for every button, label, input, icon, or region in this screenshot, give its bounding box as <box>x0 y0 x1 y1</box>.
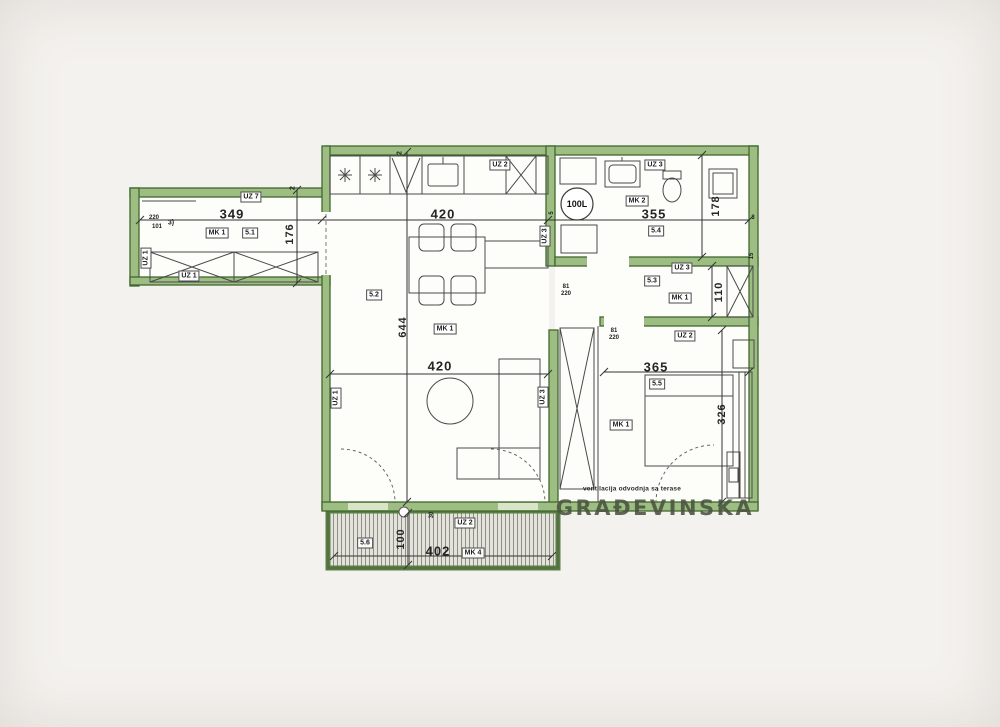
tag-mk1-hall: MK 1 <box>206 228 229 239</box>
dim-door1-width: 81 <box>563 284 570 290</box>
tag-room-5-1: 5.1 <box>242 228 258 239</box>
dim-hall-width: 349 <box>220 207 245 222</box>
dim-wall-b: 2 <box>397 151 404 155</box>
tag-uz2-terrace: UZ 2 <box>454 518 475 529</box>
tag-mk1-closet: MK 1 <box>669 293 692 304</box>
tag-uz1-living: UZ 1 <box>331 387 342 408</box>
dim-closet-height: 110 <box>713 282 725 303</box>
dim-bath-width: 355 <box>642 207 667 222</box>
tag-uz2-kitchen: UZ 2 <box>489 160 510 171</box>
tag-uz3-closet: UZ 3 <box>671 263 692 274</box>
tag-room-5-2: 5.2 <box>366 290 382 301</box>
tag-uz7: UZ 7 <box>240 192 261 203</box>
dim-wall-e: 15 <box>749 253 755 260</box>
tag-uz3-bath: UZ 3 <box>644 160 665 171</box>
tag-uz3-kitchen: UZ 3 <box>540 225 551 246</box>
tag-mk1-living: MK 1 <box>434 324 457 335</box>
dim-door2-width: 81 <box>611 328 618 334</box>
dim-hall-b: 101 <box>152 224 162 230</box>
plan-annotation: ventilacija odvodnja sa terase <box>583 486 681 493</box>
dim-terrace-depth: 100 <box>395 528 407 549</box>
dim-hall-height: 176 <box>284 223 296 244</box>
dim-wall-d: 3 <box>751 215 754 221</box>
dim-wall-c: 5 <box>549 211 555 214</box>
dim-door2-height: 220 <box>609 335 619 341</box>
floorplan-drawing <box>0 0 1000 727</box>
tag-room-5-3: 5.3 <box>644 276 660 287</box>
tag-mk4-terrace: MK 4 <box>462 548 485 559</box>
dim-bedroom-width: 365 <box>644 360 669 375</box>
boiler-label: 100L <box>567 199 588 209</box>
dim-living-height: 644 <box>397 316 409 337</box>
tag-uz3-living: UZ 3 <box>538 386 549 407</box>
scanned-floorplan-page: UZ 7 349 220 101 3) MK 1 5.1 176 UZ 1 UZ… <box>0 0 1000 727</box>
dim-bedroom-height: 326 <box>716 403 728 424</box>
tag-mk1-bedroom: MK 1 <box>610 420 633 431</box>
dim-door1-height: 220 <box>561 291 571 297</box>
tag-uz1-wall: UZ 1 <box>141 247 152 268</box>
tag-mk2-bath: MK 2 <box>626 196 649 207</box>
dim-terrace-sill: 30 <box>429 512 435 519</box>
stove-burner-icon <box>338 168 352 182</box>
tag-room-5-5: 5.5 <box>649 379 665 390</box>
tag-room-5-4: 5.4 <box>648 226 664 237</box>
dim-wall-a: 2 <box>290 186 297 190</box>
tag-uz1-hall: UZ 1 <box>178 271 199 282</box>
tag-room-5-6: 5.6 <box>357 538 373 549</box>
dim-bath-height: 178 <box>710 195 722 216</box>
dim-living-width: 420 <box>428 359 453 374</box>
dim-hall-mark: 3) <box>168 220 174 227</box>
watermark-gradevinska: GRAĐEVINSKA <box>556 496 754 520</box>
tag-uz2-bedroom: UZ 2 <box>674 331 695 342</box>
dim-kitchen-width: 420 <box>431 207 456 222</box>
dim-terrace-width: 402 <box>426 544 451 559</box>
stove-burner-icon <box>368 168 382 182</box>
dim-hall-a: 220 <box>149 215 159 221</box>
